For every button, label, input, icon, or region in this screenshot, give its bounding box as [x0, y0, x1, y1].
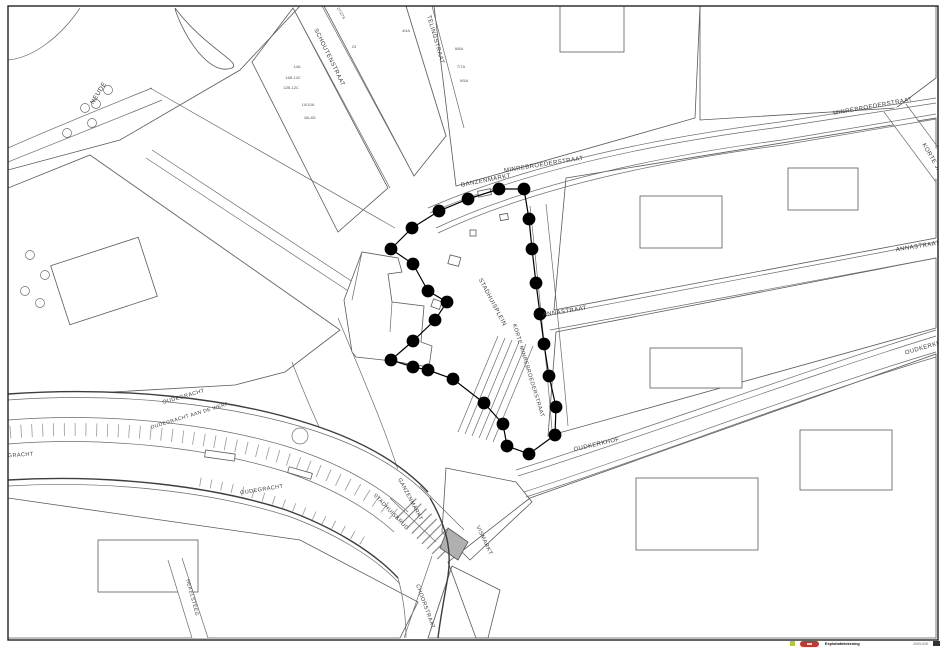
tree-circle	[21, 287, 30, 296]
boundary-dot	[497, 418, 510, 431]
boundary-dot	[543, 370, 556, 383]
parcel-number: 14A	[293, 64, 300, 69]
boundary-dot	[478, 397, 491, 410]
boundary-dot	[550, 401, 563, 414]
boundary-dot	[518, 183, 531, 196]
boundary-dot	[530, 277, 543, 290]
street-label-korte-minrebroederstraat: KORTE MINREBROEDERSTRAAT	[511, 323, 545, 418]
tree-circle	[81, 104, 90, 113]
street-label-telingstraat: TELINGSTRAAT	[425, 15, 445, 65]
street-label-minrebroederstraat: MINREBROEDERSTRAAT	[504, 156, 584, 174]
tree-circle	[41, 271, 50, 280]
boundary-dot	[447, 373, 460, 386]
boundary-dot	[422, 285, 435, 298]
boundary-dot	[407, 361, 420, 374]
street-label-neude: NEUDE	[89, 81, 108, 106]
parcel-number: 7/7A	[457, 64, 466, 69]
parcel-number: 27/27A	[336, 7, 347, 21]
legend-title: Exploitatietekening	[825, 641, 860, 646]
parcel-number: 4/4A	[402, 28, 411, 33]
parcel-number: 10/10A	[302, 102, 315, 107]
boundary-dot	[523, 213, 536, 226]
boundary-dot	[501, 440, 514, 453]
tree-circle	[63, 129, 72, 138]
street-labels: NEUDESCHOUTENSTRAATTELINGSTRAATGANZENMAR…	[0, 15, 945, 630]
legend-corner-mark	[933, 641, 940, 646]
parcel-number: 8/8A	[455, 46, 464, 51]
tree-circle	[36, 299, 45, 308]
boundary-dot	[526, 243, 539, 256]
boundary-dot	[549, 429, 562, 442]
parcel-number: 12B-12C	[283, 85, 299, 90]
street-label-annastraat: ANNASTRAAT	[895, 241, 940, 254]
tree-circle	[26, 251, 35, 260]
boundary-dot	[407, 335, 420, 348]
boundary-dot	[523, 448, 536, 461]
cadastral-map-canvas: 27/27A2314A14B-14C12B-12C10/10A8A-8D4/4A…	[0, 0, 945, 648]
boundary-dot	[385, 243, 398, 256]
boundary-dot	[493, 183, 506, 196]
legend-ref: 2009-026	[913, 642, 928, 646]
boundary-dot	[538, 338, 551, 351]
boundary-dot	[422, 364, 435, 377]
street-label-oudkerkhof: OUDKERKHOF	[904, 338, 945, 357]
boundary-dot	[441, 296, 454, 309]
street-label-stadhuisplein: STADHUISPLEIN	[477, 278, 507, 328]
parcel-number: 8A-8D	[304, 115, 315, 120]
parcel-number: 23	[352, 44, 357, 49]
building-blocks	[8, 6, 936, 638]
boundary-dot	[406, 222, 419, 235]
parcel-number: 14B-14C	[285, 75, 301, 80]
legend-color-swatch	[790, 641, 795, 646]
street-label-choorstraat: CHOORSTRAAT	[414, 584, 436, 630]
oudegracht-canal	[8, 392, 468, 638]
legend-bar: Exploitatietekening 2009-026	[790, 639, 940, 648]
boundary-dot	[385, 354, 398, 367]
boundary-dot	[429, 314, 442, 327]
street-label-annastraat: ANNASTRAAT	[542, 306, 587, 319]
tree-circle	[88, 119, 97, 128]
boundary-dot	[462, 193, 475, 206]
boundary-dot	[407, 258, 420, 271]
parcel-number: 5/5A	[460, 78, 469, 83]
map-stage: 27/27A2314A14B-14C12B-12C10/10A8A-8D4/4A…	[0, 0, 945, 648]
red-oval-logo	[800, 641, 819, 647]
boundary-dot	[433, 205, 446, 218]
